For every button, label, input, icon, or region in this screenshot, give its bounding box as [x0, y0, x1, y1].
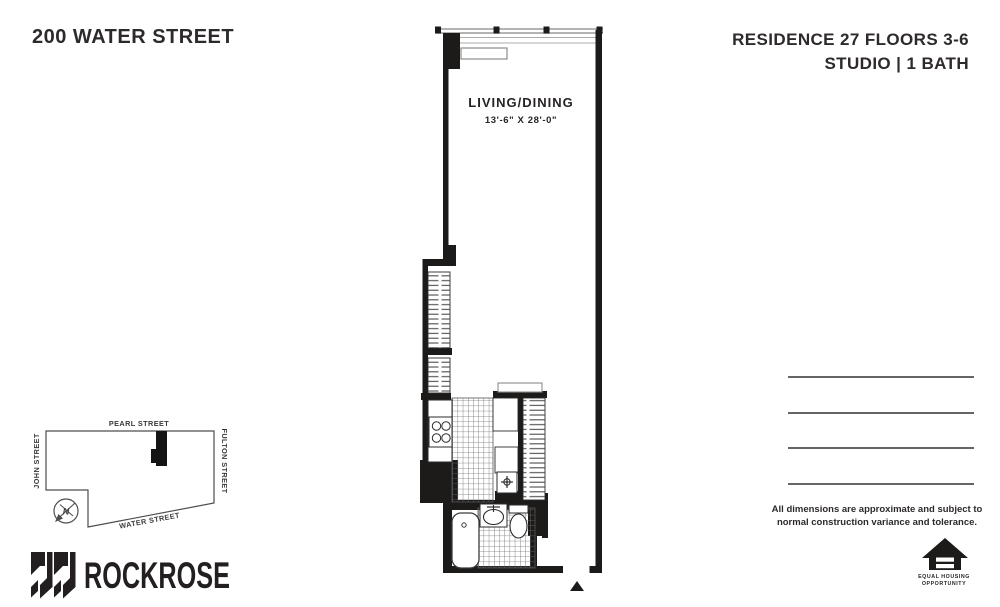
street-label-fulton: FULTON STREET	[220, 429, 229, 494]
site-map: PEARL STREET JOHN STREET FULTON STREET W…	[32, 419, 229, 531]
window-sill-unit	[461, 48, 507, 59]
compass-icon: N	[54, 499, 78, 523]
room-label: LIVING/DINING	[468, 95, 573, 110]
bathroom-sink	[480, 504, 507, 527]
kitchen-cabinet-lower	[495, 447, 518, 473]
kitchen-shelf	[498, 383, 542, 392]
rockrose-mark-icon	[31, 552, 76, 599]
equal-housing-logo: EQUAL HOUSING OPPORTUNITY	[918, 538, 970, 587]
bathtub	[452, 513, 479, 568]
closet-left-upper	[428, 272, 450, 348]
floorplan-page: 200 WATER STREET RESIDENCE 27 FLOORS 3-6…	[0, 0, 1000, 607]
window-wall	[435, 27, 603, 60]
building-footprint	[151, 431, 167, 466]
equal-housing-line1: EQUAL HOUSING	[918, 574, 970, 580]
street-label-john: JOHN STREET	[32, 433, 41, 489]
unit-floorplan: LIVING/DINING 13'-6" X 28'-0"	[420, 27, 603, 592]
street-label-pearl: PEARL STREET	[109, 419, 169, 428]
kitchen-tile-floor	[452, 398, 493, 502]
block-outline	[46, 431, 214, 527]
stove	[429, 417, 452, 447]
toilet	[509, 505, 528, 538]
closet-kitchen-right	[523, 398, 545, 500]
bathroom	[452, 504, 535, 568]
floorplan-drawing: LIVING/DINING 13'-6" X 28'-0" PEARL STRE…	[0, 0, 1000, 607]
rockrose-wordmark: ROCKROSE	[84, 555, 230, 596]
compass-label: N	[63, 507, 70, 517]
kitchen-cabinet-upper	[493, 398, 518, 431]
kitchen-sink	[497, 472, 517, 493]
room-dimensions: 13'-6" X 28'-0"	[485, 115, 557, 126]
street-label-water: WATER STREET	[119, 510, 181, 530]
entry-marker-icon	[570, 581, 584, 591]
rockrose-logo: ROCKROSE	[31, 552, 230, 599]
closet-left-lower	[428, 358, 450, 393]
equal-housing-line2: OPPORTUNITY	[922, 581, 966, 587]
